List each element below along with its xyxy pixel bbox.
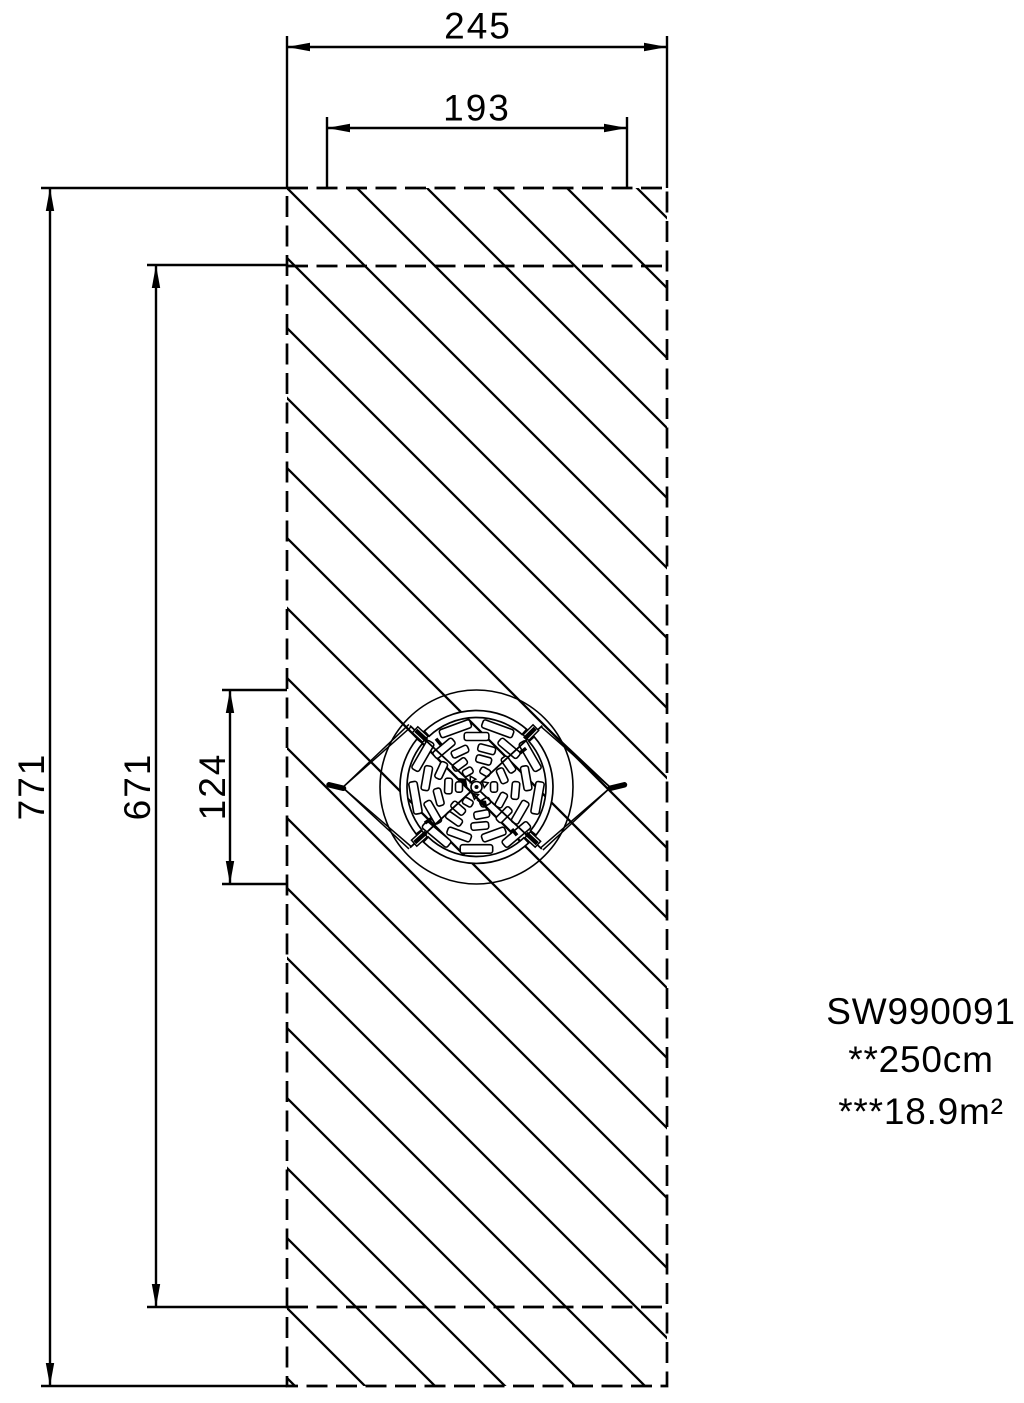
svg-text:193: 193 <box>443 88 511 129</box>
svg-text:SW990091: SW990091 <box>826 991 1015 1032</box>
svg-text:**250cm: **250cm <box>848 1039 993 1080</box>
svg-text:***18.9m²: ***18.9m² <box>838 1091 1004 1132</box>
svg-text:771: 771 <box>11 753 52 821</box>
svg-text:124: 124 <box>192 753 233 821</box>
svg-text:671: 671 <box>117 753 158 821</box>
svg-text:245: 245 <box>444 6 512 47</box>
